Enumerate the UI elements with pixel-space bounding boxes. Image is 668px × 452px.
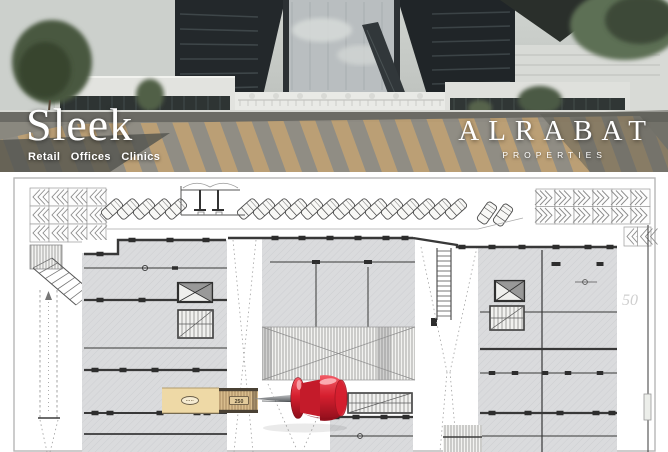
stair-bottom	[342, 393, 413, 413]
parking-zone	[30, 183, 658, 246]
hero-photo: Sleek Retail Offices Clinics ALRABAT PRO…	[0, 0, 668, 172]
stair-core-left	[178, 310, 213, 338]
floor-plan: 50250	[0, 172, 668, 452]
developer-name: ALRABAT	[458, 117, 655, 146]
unit-label: 250	[235, 399, 244, 405]
listing-brochure: Sleek Retail Offices Clinics ALRABAT PRO…	[0, 0, 668, 452]
retail-block-right: 50	[413, 238, 638, 452]
project-name: Sleek	[26, 102, 160, 148]
right-corridor	[644, 225, 651, 452]
project-logo: Sleek Retail Offices Clinics	[26, 102, 160, 167]
floor-plan-drawing: 50250	[0, 172, 668, 452]
stair-core-right	[490, 306, 524, 330]
unit-highlight: 250	[162, 388, 258, 413]
developer-logo: ALRABAT PROPERTIES	[458, 117, 646, 160]
block-bottom-center	[330, 415, 413, 452]
developer-subtitle: PROPERTIES	[458, 150, 651, 160]
ramp-guides-left	[233, 240, 256, 452]
center-ramp	[262, 327, 415, 380]
ramp-bottom-right	[443, 425, 482, 452]
entrance-canopy	[181, 183, 245, 215]
project-tagline: Retail Offices Clinics	[28, 151, 160, 163]
watermark-label: 50	[622, 292, 638, 309]
retail-block-left	[82, 238, 227, 452]
ladder-stair	[431, 248, 451, 326]
